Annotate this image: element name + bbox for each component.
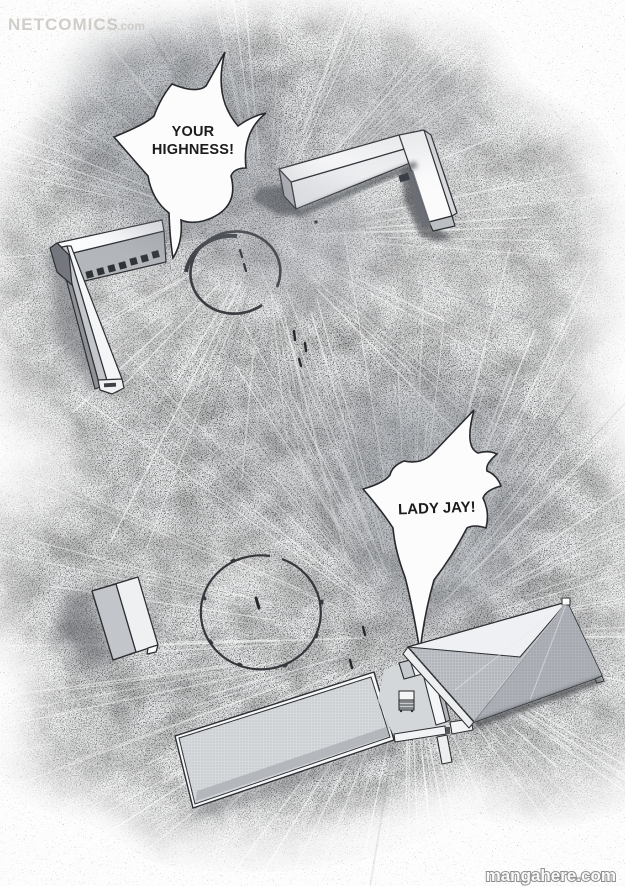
svg-text:NETCOMICS: NETCOMICS [8,15,119,34]
svg-text:LADY JAY!: LADY JAY! [398,499,476,519]
svg-text:YOUR: YOUR [172,124,215,140]
svg-text:mangahere.com: mangahere.com [486,866,616,885]
svg-text:.com: .com [117,19,145,33]
svg-text:HIGHNESS!: HIGHNESS! [152,142,234,158]
